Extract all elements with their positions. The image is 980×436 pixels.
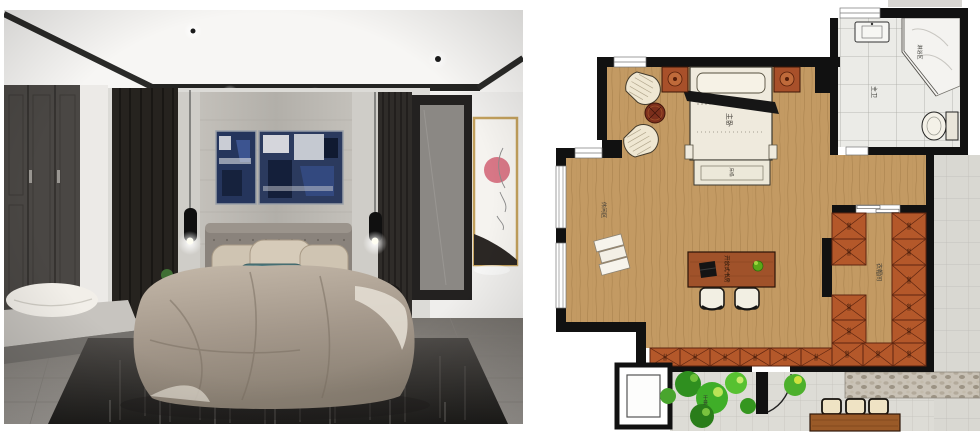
wardrobe-cabinet: 衣柜 [832, 343, 863, 366]
side-table [645, 103, 665, 123]
svg-text:衣柜: 衣柜 [847, 222, 852, 230]
bathroom-label: 主卫 [870, 86, 878, 98]
svg-text:衣柜: 衣柜 [907, 350, 912, 358]
vignette [4, 10, 523, 424]
bed-label: 主卧 [725, 113, 734, 127]
study-desk: 开放式书房 [688, 252, 775, 287]
svg-text:书柜: 书柜 [693, 353, 698, 361]
bookcase-cabinet: 书柜 [710, 348, 740, 366]
toilet [922, 112, 958, 140]
svg-text:衣柜: 衣柜 [845, 350, 850, 358]
desk-chair [735, 288, 759, 310]
dining-chair [869, 399, 888, 414]
bookcase-cabinet: 书柜 [740, 348, 770, 366]
nightstand [774, 67, 800, 92]
wardrobe-cabinet: 衣柜 [893, 343, 926, 366]
svg-text:衣柜: 衣柜 [907, 222, 912, 230]
wardrobe-cabinet: 衣柜 [832, 295, 866, 320]
wardrobe-cabinet: 衣柜 [832, 213, 866, 239]
floor-plan: 淋浴区 主卫 [524, 0, 980, 436]
desk-chair [700, 288, 724, 310]
wardrobe-cabinet: 衣柜 [892, 213, 926, 239]
dry-landscape-label: 干景 [702, 395, 708, 406]
bookcase-cabinet: 书柜 [770, 348, 801, 366]
svg-text:书柜: 书柜 [783, 353, 788, 361]
bathroom-door [846, 147, 868, 155]
closet-label: 衣帽间 [875, 263, 883, 281]
wardrobe-cabinet: 衣柜 [863, 343, 893, 366]
svg-text:衣柜: 衣柜 [847, 303, 852, 311]
bathroom: 淋浴区 主卫 [838, 0, 962, 147]
nightstand [662, 67, 688, 92]
stone-path [845, 372, 980, 398]
svg-text:书柜: 书柜 [663, 353, 668, 361]
svg-text:衣柜: 衣柜 [876, 350, 881, 358]
bookcases: 书柜 书柜 书柜 书柜 书柜 书柜 [650, 348, 832, 366]
bookcase-cabinet: 书柜 [801, 348, 832, 366]
wardrobe-cabinet: 衣柜 [832, 320, 866, 343]
study-label: 开放式书房 [723, 255, 731, 283]
bookcase-cabinet: 书柜 [680, 348, 710, 366]
svg-text:书柜: 书柜 [723, 353, 728, 361]
bed: 主卧 床榻 [683, 67, 779, 185]
bedroom-photo-panel [0, 0, 524, 436]
dining-chair [846, 399, 865, 414]
dining-chair [822, 399, 841, 414]
wardrobe-cabinet: 衣柜 [892, 265, 926, 295]
svg-text:衣柜: 衣柜 [907, 248, 912, 256]
bench-label: 床榻 [728, 168, 735, 177]
wardrobe-cabinet: 衣柜 [892, 320, 926, 343]
page: 淋浴区 主卫 [0, 0, 980, 436]
leisure-label: 休闲区 [600, 202, 608, 219]
wardrobe-cabinet: 衣柜 [892, 295, 926, 320]
wardrobe-cabinet: 衣柜 [892, 239, 926, 265]
svg-text:衣柜: 衣柜 [907, 276, 912, 284]
laptop [699, 261, 717, 278]
bedroom-photo [0, 0, 524, 436]
svg-text:衣柜: 衣柜 [847, 327, 852, 335]
floor-plan-panel: 淋浴区 主卫 [524, 0, 980, 436]
wardrobe-cabinet: 衣柜 [832, 239, 866, 265]
sink [855, 22, 889, 42]
pillow [697, 73, 765, 93]
dining-table [810, 414, 900, 431]
svg-text:衣柜: 衣柜 [907, 303, 912, 311]
shower-label: 淋浴区 [916, 44, 923, 59]
svg-text:书柜: 书柜 [814, 353, 819, 361]
svg-text:衣柜: 衣柜 [907, 327, 912, 335]
svg-text:书柜: 书柜 [753, 353, 758, 361]
svg-text:衣柜: 衣柜 [847, 248, 852, 256]
